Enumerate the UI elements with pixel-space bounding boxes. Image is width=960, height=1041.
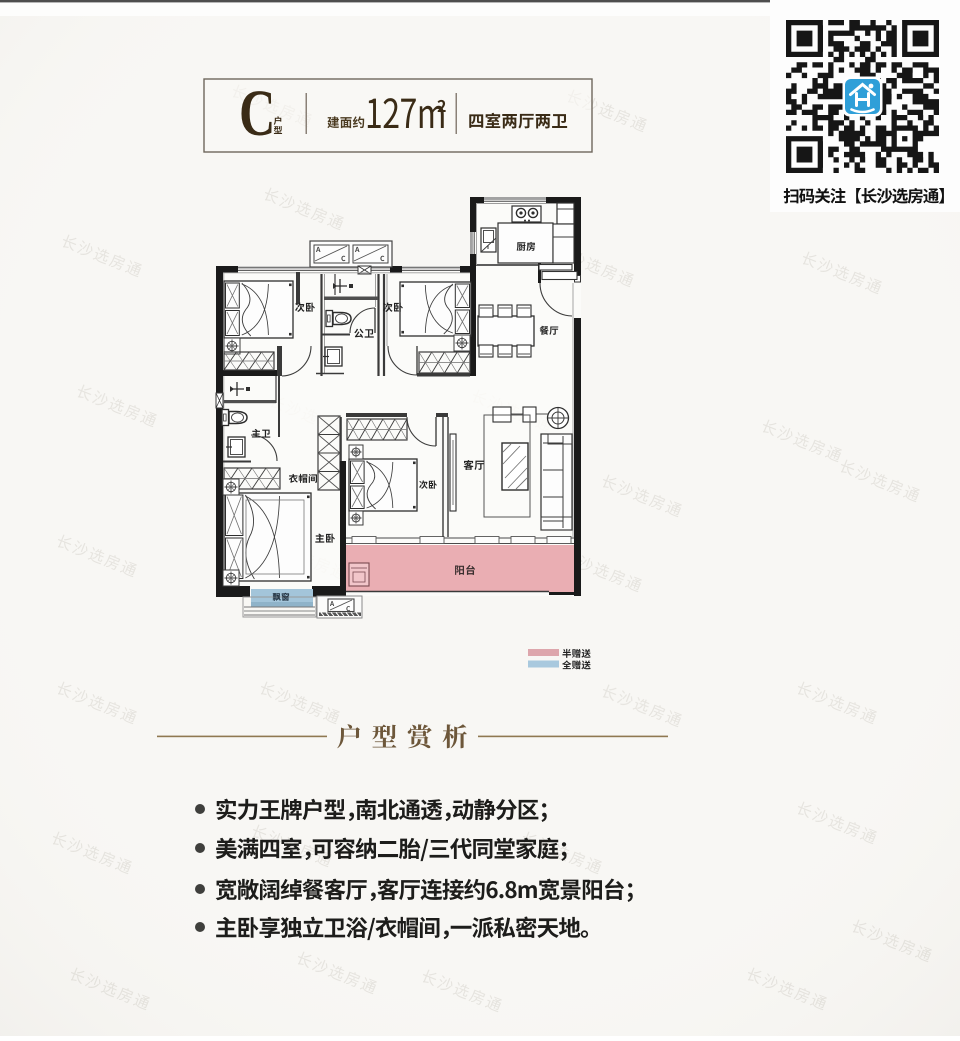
svg-text:C: C	[239, 77, 275, 150]
